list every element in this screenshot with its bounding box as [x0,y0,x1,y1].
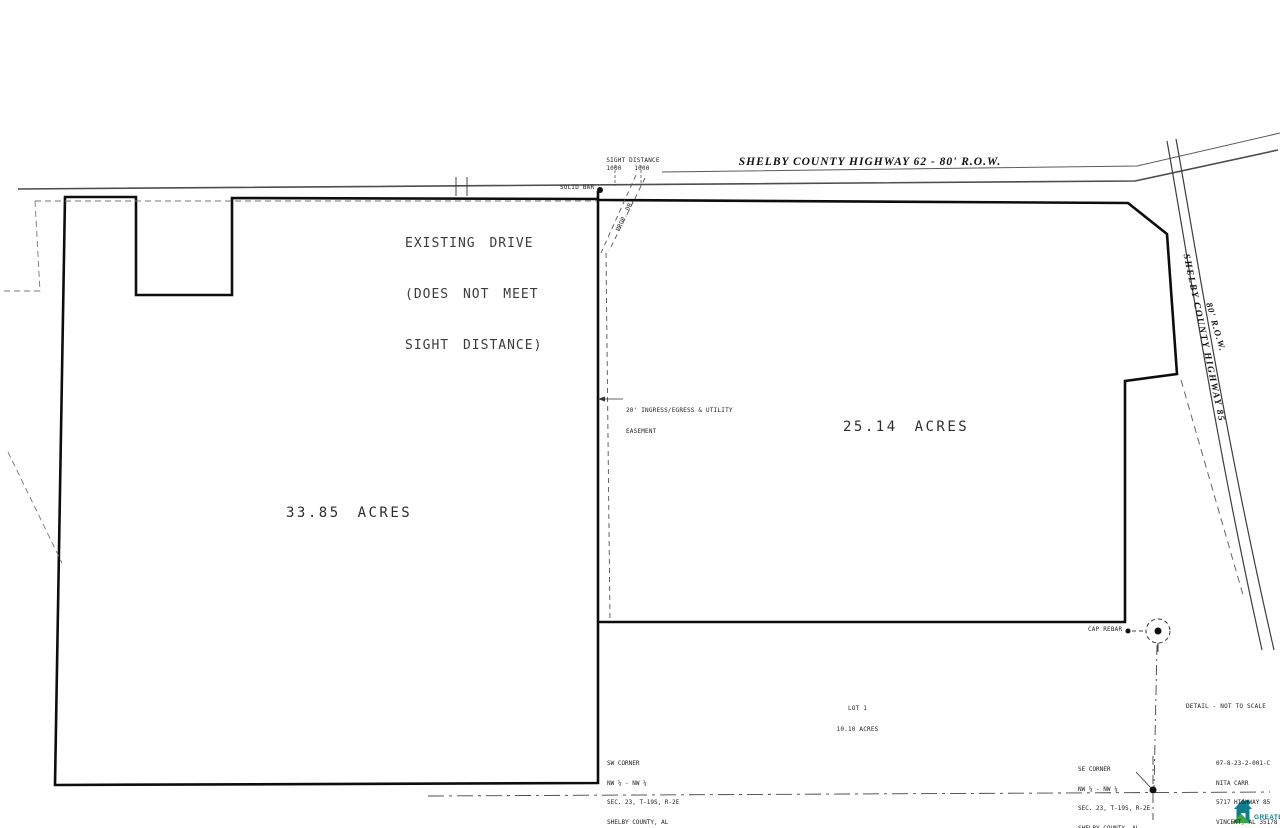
se-corner-line2: NW ¼ - NW ¼ [1078,787,1150,794]
lot1-label-line1: LOT 1 [820,705,895,712]
solid-bar-label: SOLID BAR [560,184,594,191]
sight-distance-label: SIGHT DISTANCE [606,157,660,164]
lot1-label: LOT 1 10.10 ACRES [820,691,895,747]
detail-rebar-point [1155,628,1162,635]
easement-label-line1: 20' INGRESS/EGRESS & UTILITY [626,407,733,414]
detail-note: DETAIL - NOT TO SCALE [1186,703,1266,710]
sight-distance-value-left: 1000 [606,165,622,172]
property-owner: NITA CARR [1216,781,1277,788]
survey-plat-drawing: SHELBY COUNTY HIGHWAY 62 - 80' R.O.W. SI… [0,0,1280,828]
mls-logo-line1: GREATER [1254,814,1280,822]
highway-85-east-edge [1176,139,1274,650]
se-corner-line3: SEC. 23, T-19S, R-2E [1078,806,1150,813]
easement-label: 20' INGRESS/EGRESS & UTILITY EASEMENT [626,393,733,449]
easement-dashed-line [606,253,610,621]
highway-62-label: SHELBY COUNTY HIGHWAY 62 - 80' R.O.W. [700,156,1040,168]
adjacent-parcel-dashed-left [4,201,40,291]
proposed-drive-dashed-west [601,175,636,253]
se-corner-line1: SE CORNER [1078,767,1150,774]
detail-to-corner-line [1154,645,1157,788]
existing-drive-note: EXISTING DRIVE (DOES NOT MEET SIGHT DIST… [405,201,542,388]
property-parcel-id: 07-8-23-2-001-C [1216,761,1277,768]
parcel-west-acreage: 33.85 ACRES [286,505,412,521]
se-corner-note: SE CORNER NW ¼ - NW ¼ SEC. 23, T-19S, R-… [1078,754,1150,828]
existing-drive-note-line2: (DOES NOT MEET [405,286,542,303]
sw-corner-note: SW CORNER NW ¼ - NW ¼ SEC. 23, T-19S, R-… [607,748,679,828]
existing-drive-note-line3: SIGHT DISTANCE) [405,337,542,354]
lot1-label-line2: 10.10 ACRES [820,726,895,733]
sw-corner-line3: SEC. 23, T-19S, R-2E [607,800,679,807]
cap-rebar-label: CAP REBAR [1088,626,1122,633]
parcel-east-acreage: 25.14 ACRES [843,419,969,435]
solid-bar-point [597,187,603,193]
sw-corner-line4: SHELBY COUNTY, AL [607,820,679,827]
sw-corner-line2: NW ¼ - NW ¼ [607,781,679,788]
sight-distance-value-right: 1000 [634,165,650,172]
highway-85-row-dashed-line [1181,380,1243,595]
mls-logo-text: GREATER ALABAMA MLS [1254,799,1280,828]
sw-corner-line1: SW CORNER [607,761,679,768]
easement-label-line2: EASEMENT [626,428,733,435]
cap-rebar-point [1126,629,1131,634]
existing-drive-note-line1: EXISTING DRIVE [405,235,542,252]
adjacent-parcel-dashed-diagonal [8,452,62,563]
